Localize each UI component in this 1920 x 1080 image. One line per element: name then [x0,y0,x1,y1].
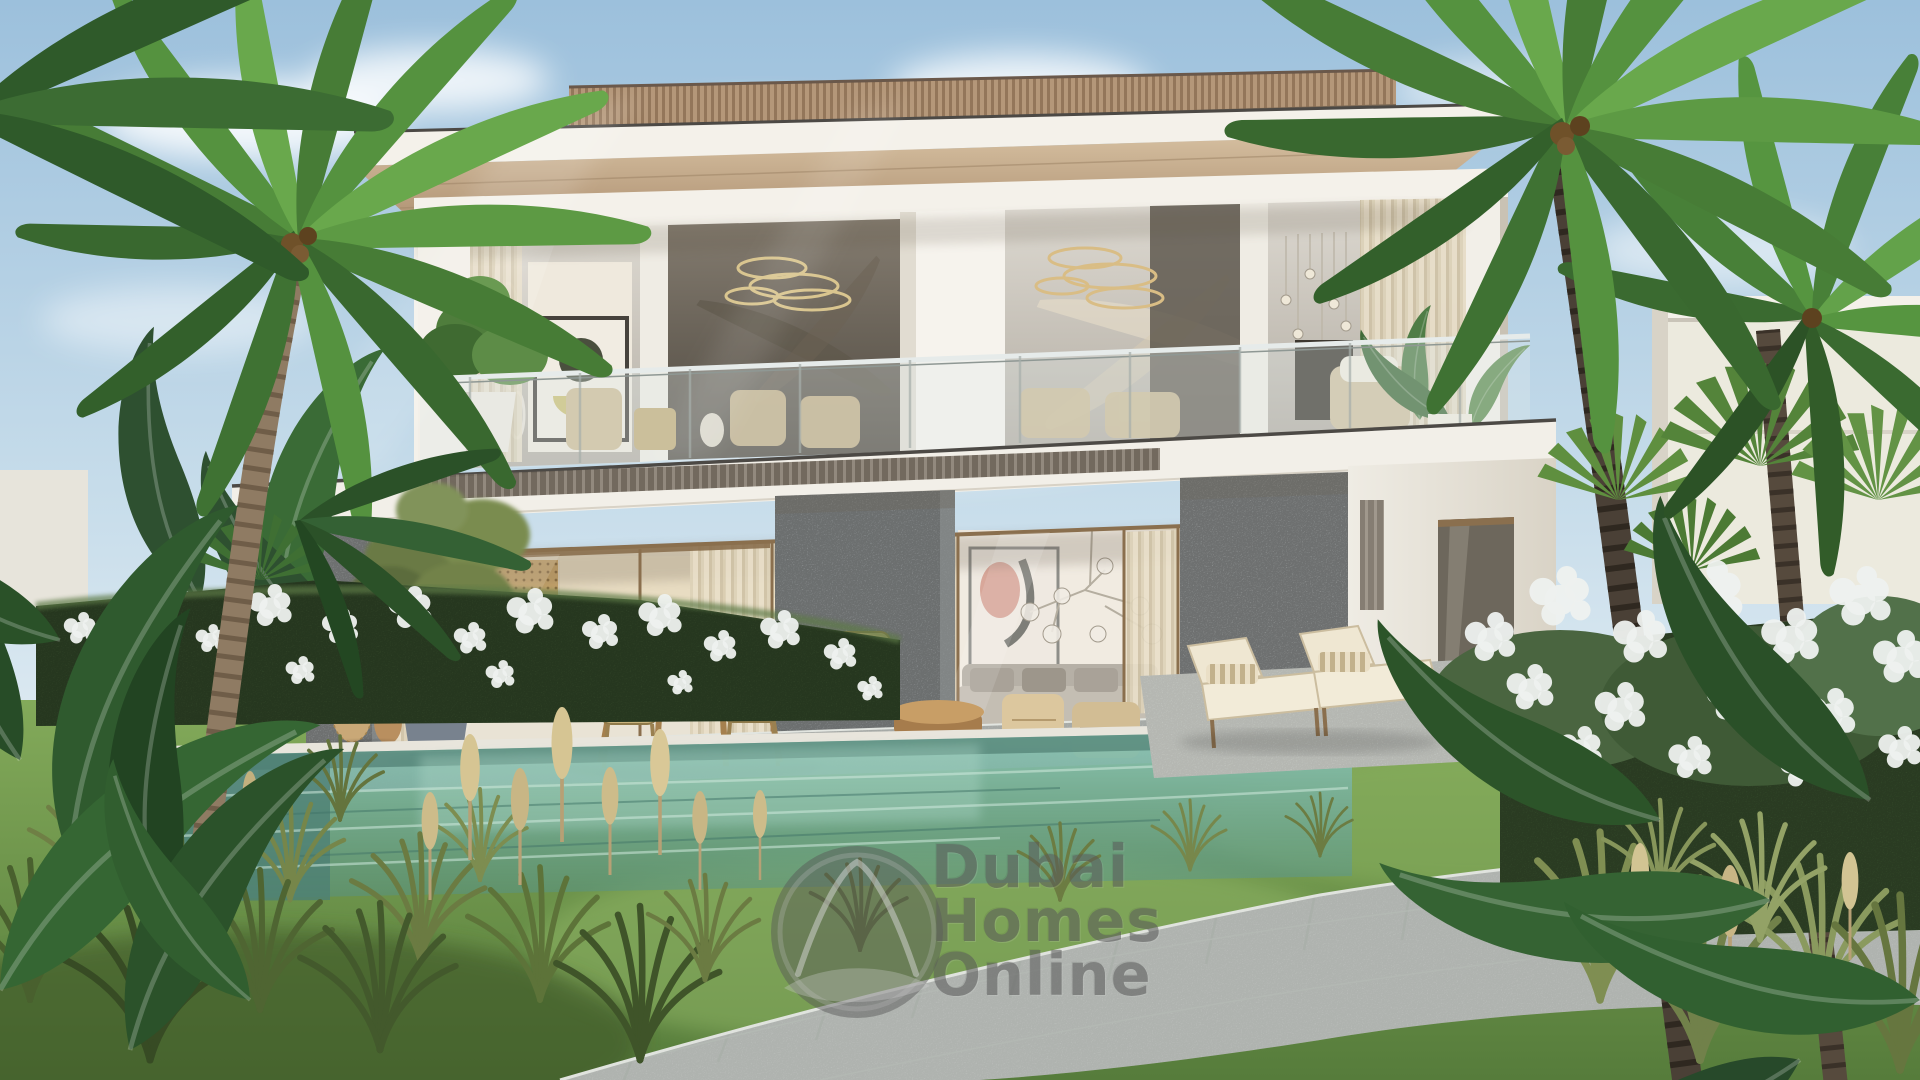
architectural-render-scene [0,0,1920,1080]
villa-render-photo: Dubai Homes Online [0,0,1920,1080]
